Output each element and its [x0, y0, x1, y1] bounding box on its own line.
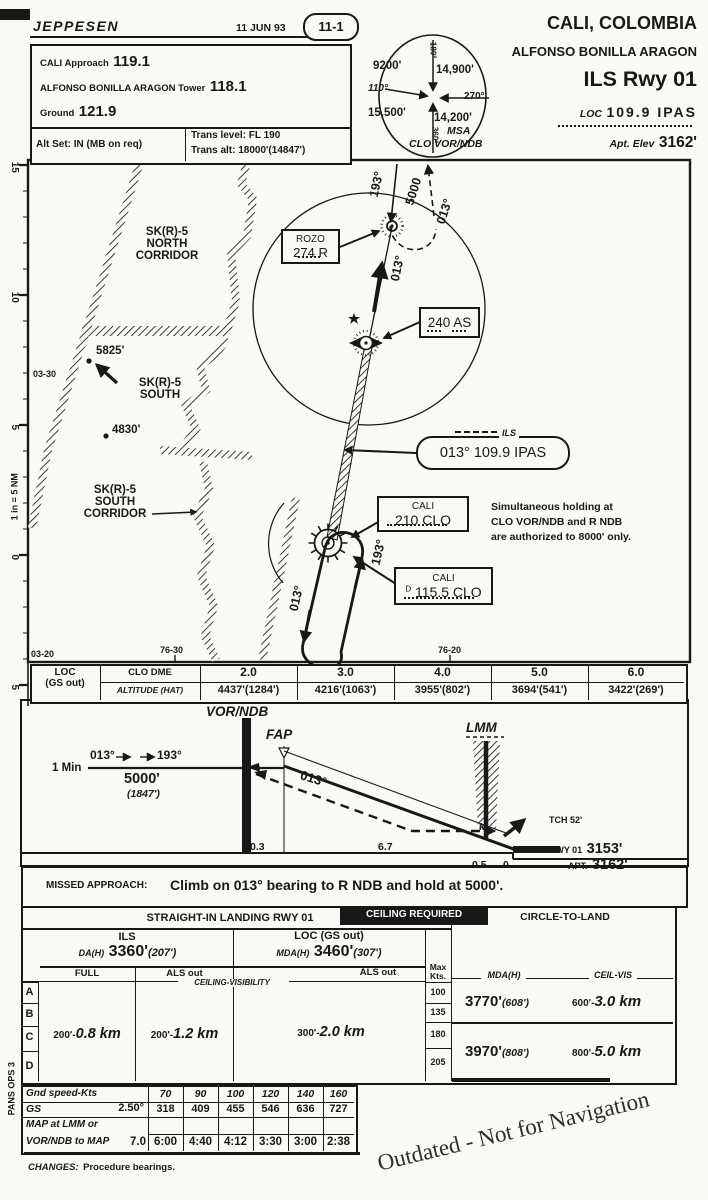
loc-morse-code — [558, 125, 692, 127]
area-north-corridor: SK(R)-5 NORTH CORRIDOR — [112, 226, 222, 262]
speed-col: 70 — [148, 1089, 183, 1100]
rozo-ndb-symbol — [382, 216, 403, 237]
time-value: 2:38 — [323, 1136, 354, 1148]
changes-label: CHANGES: — [28, 1162, 79, 1173]
comm-label: CALI Approach — [40, 58, 109, 69]
clo-hold-outbound: 013° — [288, 584, 307, 612]
approach-chart: JEPPESEN 11 JUN 93 11-1 CALI Approach 11… — [0, 0, 708, 1200]
profile-lmm-label: LMM — [466, 721, 497, 735]
gs-value: 318 — [148, 1104, 183, 1116]
ruler-minor-ticks — [23, 191, 28, 659]
da-value: 3360' — [109, 943, 148, 960]
pans-ops-side-label: PANS OPS 3 — [7, 1049, 16, 1129]
distance-0-5: 0.5 — [472, 860, 487, 871]
max-kts-100: 100 — [425, 988, 451, 997]
category-a: A — [21, 987, 38, 999]
gs-value: 546 — [253, 1104, 288, 1116]
max-kts-header: Max Kts. — [425, 963, 451, 981]
hold-outbound-course: 013° — [90, 749, 115, 762]
category-d: D — [21, 1061, 38, 1073]
time-value: 4:40 — [183, 1136, 218, 1148]
distance-6-7: 6.7 — [378, 842, 393, 853]
missed-approach-arrow — [504, 820, 524, 836]
msa-sw: 15,500' — [368, 107, 406, 119]
trans-level: Trans level: FL 190 — [191, 131, 280, 142]
clo-holding-pattern — [302, 532, 362, 668]
ruler-15: 15 — [8, 162, 19, 173]
msa-bearing-right: 270° — [464, 92, 485, 103]
clo-vor-symbol — [309, 524, 348, 563]
altitude-value: 3955'(802') — [394, 685, 491, 697]
da-label: DA(H) — [79, 948, 105, 958]
obstacle-dot-1 — [86, 358, 91, 363]
vis-value: 5.0 km — [594, 1043, 641, 1060]
course-arrow — [374, 264, 382, 312]
cali-vor-box: CALI D 115.5 CLO — [394, 567, 493, 605]
ils-full-minima: 200'-0.8 km — [40, 1026, 134, 1043]
clo-hold-inbound: 193° — [370, 538, 389, 566]
apt-label: APT. — [568, 861, 588, 871]
airport-star-icon — [348, 313, 360, 324]
dashed-arrowhead — [254, 770, 267, 780]
altitude-value: 3422'(269') — [588, 685, 684, 697]
chart-city: CALI, COLOMBIA — [450, 14, 697, 33]
as-morse-1 — [427, 330, 441, 332]
minima-value: 0.8 km — [76, 1026, 121, 1042]
circle-mda-header: MDA(H) — [482, 971, 526, 980]
lmm-marker-band — [473, 741, 500, 829]
as-ident: 240 AS — [428, 315, 472, 330]
altimeter-box-divider — [185, 127, 186, 161]
trans-alt: Trans alt: 18000'(14847') — [191, 146, 305, 157]
cali-vor-name: CALI — [432, 573, 454, 584]
ils-value: 013° 109.9 IPAS — [440, 445, 546, 461]
minima-prefix: 300'- — [297, 1028, 319, 1039]
comm-freq: 121.9 — [79, 103, 117, 120]
apt-elev-line: Apt. Elev 3162' — [450, 135, 697, 152]
ils-da-line: DA(H) 3360'(207') — [40, 944, 215, 961]
hold-altitude-hat: (1847') — [127, 789, 160, 800]
altitude-hat-label: ALTITUDE (HAT) — [100, 686, 200, 695]
map-row-label-2: VOR/NDB to MAP — [26, 1137, 109, 1148]
loc-label: LOC — [580, 108, 602, 120]
minima-prefix: 200'- — [53, 1030, 75, 1041]
dme-value: 4.0 — [394, 666, 491, 679]
vis-value: 3.0 km — [594, 993, 641, 1010]
changes-text: Procedure bearings. — [83, 1162, 175, 1173]
ils-column-header: ILS — [97, 932, 157, 944]
loc-freq-line: LOC 109.9 IPAS — [450, 105, 697, 122]
chart-index: 11-1 — [318, 20, 343, 34]
max-kts-205: 205 — [425, 1058, 451, 1067]
time-value: 6:00 — [148, 1136, 183, 1148]
area-south: SK(R)-5 SOUTH — [125, 377, 195, 401]
loc-value: 109.9 IPAS — [606, 104, 697, 120]
clo-ring-arc — [269, 503, 284, 583]
vis-prefix: 800'- — [572, 1048, 594, 1059]
watermark: Outdated - Not for Navigation — [375, 1073, 708, 1176]
speed-col: 120 — [253, 1089, 288, 1100]
ils-tag: ILS — [499, 429, 519, 438]
minima-value: 1.2 km — [173, 1026, 218, 1042]
time-value: 3:30 — [253, 1136, 288, 1148]
inbound-course-label: 013° — [389, 255, 407, 283]
latitude-03-30: 03-30 — [33, 370, 56, 379]
speed-col: 140 — [288, 1089, 323, 1100]
ils-als-out-minima: 200'-1.2 km — [137, 1026, 232, 1043]
category-b: B — [21, 1009, 38, 1021]
fap-symbol — [279, 748, 289, 758]
minima-value: 2.0 km — [320, 1024, 365, 1040]
ruler-5: 5 — [9, 424, 20, 430]
area-line: CORRIDOR — [72, 508, 158, 520]
loc-table-subtitle: (GS out) — [30, 679, 100, 690]
area-south-corridor: SK(R)-5 SOUTH CORRIDOR — [72, 484, 158, 520]
ils-tag-dashes — [455, 431, 497, 433]
apt-elev: 3162' — [592, 857, 628, 873]
circle-ab-mda: 3770'(608') — [465, 994, 529, 1011]
category-c: C — [21, 1032, 38, 1044]
area-line: SOUTH — [125, 389, 195, 401]
ceiling-required-badge: CEILING REQUIRED — [340, 907, 488, 925]
cali-ndb-morse — [387, 524, 447, 526]
loc-minima: 300'-2.0 km — [240, 1024, 422, 1041]
tch-label: TCH 52' — [549, 816, 582, 825]
gnd-speed-label: Gnd speed-Kts — [26, 1089, 97, 1100]
mda-label: MDA(H) — [276, 948, 309, 958]
cali-ndb-box: CALI 210 CLO — [377, 496, 469, 532]
gs-value: 455 — [218, 1104, 253, 1116]
ils-frequency-box: 013° 109.9 IPAS — [416, 436, 570, 470]
glide-upper-line — [284, 751, 506, 833]
als-out-header-2: ALS out — [350, 968, 406, 978]
full-column-header: FULL — [60, 969, 114, 979]
apt-elev-value: 3162' — [659, 134, 697, 151]
obstacle-label-2: 4830' — [112, 424, 140, 436]
rwy-elev: 3153' — [587, 841, 623, 857]
area-line: SK(R)-5 — [125, 377, 195, 389]
msa-bearing-left: 110° — [368, 84, 388, 95]
missed-approach-label: MISSED APPROACH: — [46, 881, 147, 892]
dme-indicator: D — [405, 584, 411, 593]
ruler-5b: 5 — [9, 684, 20, 690]
comm-row-approach: CALI Approach 119.1 — [40, 54, 150, 71]
da-hat: (207') — [148, 947, 176, 959]
circle-cd-vis: 800'-5.0 km — [572, 1044, 641, 1061]
as-morse-2 — [452, 330, 466, 332]
loc-column-header: LOC (GS out) — [279, 931, 379, 943]
ruler-major-ticks — [19, 165, 28, 685]
max-kts-180: 180 — [425, 1030, 451, 1039]
msa-bearing-top: 180° — [428, 42, 436, 59]
jeppesen-logo: JEPPESEN — [33, 19, 119, 34]
circle-to-land-header: CIRCLE-TO-LAND — [490, 912, 640, 923]
area-line: NORTH — [112, 238, 222, 250]
comm-freq: 118.1 — [210, 78, 247, 95]
rozo-hold-inbound: 193° — [368, 170, 387, 198]
rozo-ndb-box: ROZO 274 R — [281, 229, 340, 264]
ruler-10: 10 — [8, 292, 19, 303]
scale-label: 1 in = 5 NM — [10, 452, 19, 542]
changes-line: CHANGES: Procedure bearings. — [28, 1158, 175, 1175]
speed-table-shadow — [24, 1152, 360, 1155]
gs-angle: 2.50° — [100, 1103, 144, 1115]
speed-col: 160 — [323, 1089, 354, 1100]
ceil-vis-header: CEIL-VIS — [590, 971, 636, 980]
comm-row-tower: ALFONSO BONILLA ARAGON Tower 118.1 — [40, 79, 247, 96]
chart-procedure: ILS Rwy 01 — [450, 68, 697, 91]
circle-cd-mda: 3970'(808') — [465, 1044, 529, 1061]
longitude-ticks — [175, 655, 450, 662]
time-value: 4:12 — [218, 1136, 253, 1148]
dme-value: 2.0 — [200, 666, 297, 679]
scan-artifact — [0, 9, 30, 20]
max-kts-135: 135 — [425, 1008, 451, 1017]
missed-approach-text: Climb on 013° bearing to R NDB and hold … — [170, 878, 503, 893]
loc-mda-line: MDA(H) 3460'(307') — [254, 944, 404, 961]
rozo-hold-altitude: 5000 — [404, 176, 425, 206]
mda-value: 3460' — [314, 943, 353, 960]
rozo-name: ROZO — [296, 234, 325, 245]
apt-elev-label: Apt. Elev — [609, 138, 654, 150]
callout-arrows — [97, 231, 420, 584]
circle-mda: 3970' — [465, 1043, 502, 1060]
circle-hat: (608') — [502, 997, 529, 1009]
circle-ab-vis: 600'-3.0 km — [572, 994, 641, 1011]
latitude-03-20: 03-20 — [31, 650, 54, 659]
cali-vor-morse — [404, 597, 474, 599]
glide-course-label: 013° — [299, 768, 329, 789]
altitude-value: 4437'(1284') — [200, 685, 297, 697]
distance-0-3: 0.3 — [250, 842, 265, 853]
altitude-value: 4216'(1063') — [297, 685, 394, 697]
minima-prefix: 200'- — [151, 1030, 173, 1041]
header-rule — [30, 36, 352, 38]
cali-ndb-name: CALI — [412, 501, 434, 512]
loc-only-path — [256, 774, 494, 831]
vis-prefix: 600'- — [572, 998, 594, 1009]
gs-value: 636 — [288, 1104, 323, 1116]
gs-value: 409 — [183, 1104, 218, 1116]
time-value: 3:00 — [288, 1136, 323, 1148]
profile-vor-bar — [242, 718, 251, 853]
rwy-label: RWY 01 — [549, 845, 582, 855]
chart-index-badge: 11-1 — [303, 13, 359, 41]
rozo-hold-outbound: 013° — [435, 197, 455, 226]
circle-box-shadow — [452, 1078, 610, 1082]
profile-fap-label: FAP — [266, 728, 292, 742]
kts-label: Kts. — [425, 972, 451, 981]
loc-table-title: LOC — [30, 668, 100, 679]
comm-row-ground: Ground 121.9 — [40, 104, 116, 121]
note-line: CLO VOR/NDB and R NDB — [491, 515, 631, 530]
alt-set: Alt Set: IN (MB on req) — [36, 140, 142, 151]
gs-row-label: GS — [26, 1104, 41, 1115]
speed-col: 90 — [183, 1089, 218, 1100]
hold-inbound-course: 193° — [157, 749, 182, 762]
speed-col: 100 — [218, 1089, 253, 1100]
circle-hat: (808') — [502, 1047, 529, 1059]
chart-airport: ALFONSO BONILLA ARAGON — [450, 45, 697, 59]
comm-freq: 119.1 — [113, 53, 150, 70]
note-line: Simultaneous holding at — [491, 500, 631, 515]
rozo-morse-code — [298, 256, 320, 258]
clo-dme-label: CLO DME — [100, 668, 200, 678]
dme-value: 6.0 — [588, 666, 684, 679]
msa-nw: 9200' — [373, 60, 401, 72]
note-line: are authorized to 8000' only. — [491, 530, 631, 545]
airport-elevation: APT. 3162' — [568, 857, 628, 874]
chart-date: 11 JUN 93 — [236, 23, 286, 34]
distance-0: 0 — [503, 860, 509, 871]
obstacle-dot-2 — [103, 433, 108, 438]
level-arrowhead — [247, 763, 260, 772]
hold-time-label: 1 Min — [52, 762, 81, 774]
dme-value: 3.0 — [297, 666, 394, 679]
longitude-76-30: 76-30 — [160, 646, 183, 655]
holding-note: Simultaneous holding at CLO VOR/NDB and … — [491, 500, 631, 545]
comm-label: ALFONSO BONILLA ARAGON Tower — [40, 83, 205, 94]
lmm-marker-letter: M — [479, 823, 487, 834]
altitude-value: 3694'(541') — [491, 685, 588, 697]
as-ndb-box: 240 AS — [419, 307, 480, 338]
area-line: SOUTH — [72, 496, 158, 508]
gs-value: 727 — [323, 1104, 354, 1116]
airport-ndb-symbol — [349, 331, 383, 355]
profile-vor-label: VOR/NDB — [206, 705, 268, 719]
runway-elevation: RWY 01 3153' — [549, 841, 622, 858]
map-row-label-1: MAP at LMM or — [26, 1120, 98, 1131]
comm-label: Ground — [40, 108, 74, 119]
localizer-feather — [327, 340, 373, 540]
area-line: CORRIDOR — [112, 250, 222, 262]
area-line: SK(R)-5 — [112, 226, 222, 238]
longitude-76-20: 76-20 — [438, 646, 461, 655]
circle-mda: 3770' — [465, 993, 502, 1010]
mda-hat: (307') — [353, 947, 381, 959]
ceiling-visibility-label: CEILING-VISIBILITY — [180, 979, 284, 987]
obstacle-label-1: 5825' — [96, 345, 124, 357]
hold-altitude: 5000' — [124, 772, 160, 787]
map-distance: 7.0 — [122, 1136, 146, 1148]
dme-value: 5.0 — [491, 666, 588, 679]
ruler-0: 0 — [9, 554, 20, 560]
area-line: SK(R)-5 — [72, 484, 158, 496]
